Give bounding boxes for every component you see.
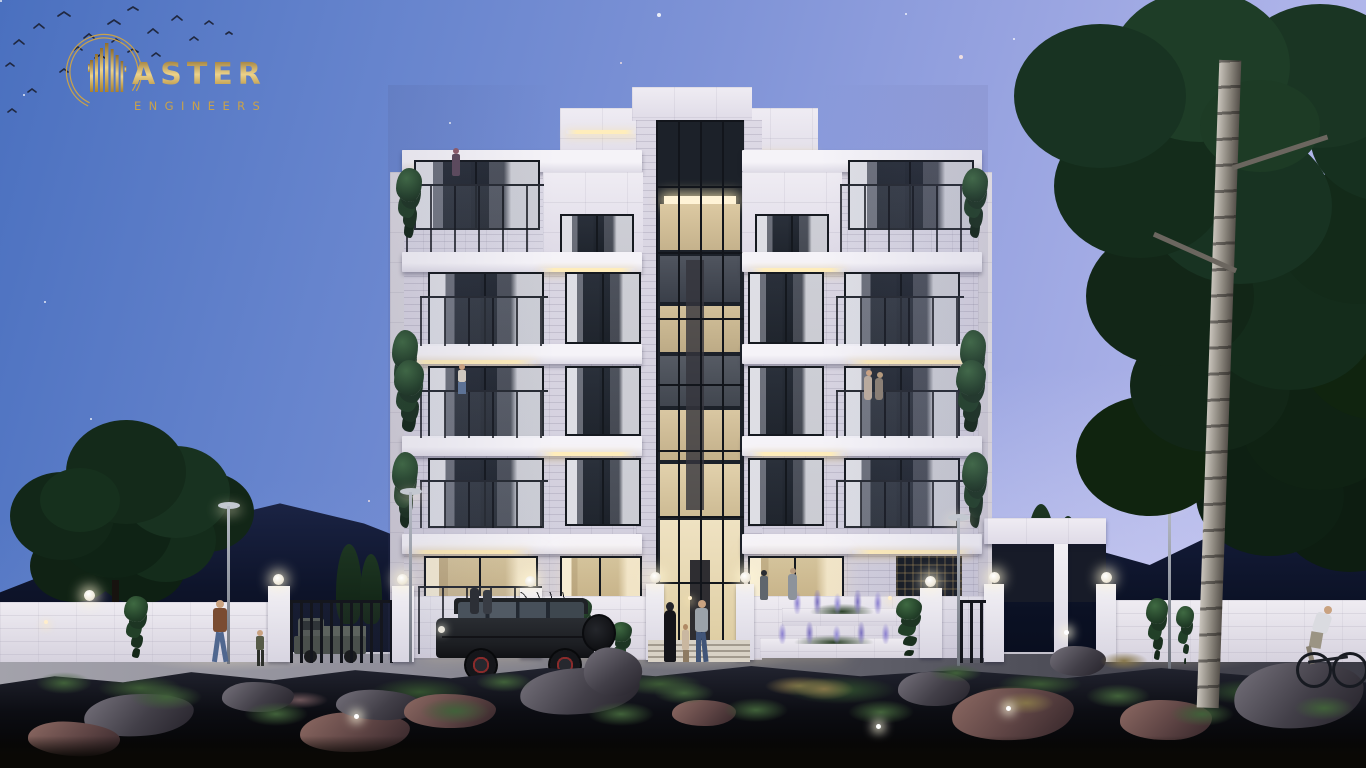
grass-tuft [588,702,654,726]
penthouse-window [755,214,829,256]
window [748,458,824,526]
iron-gate [290,600,394,663]
ground-light [1006,706,1011,711]
globe-lamp [273,574,284,585]
wall-sconce [44,620,48,624]
dry-grass-tuft [1100,652,1148,670]
led-soffit [848,360,978,364]
rooftop-woman [450,148,462,176]
balcony-railing [836,480,964,528]
child-center [680,624,691,662]
globe-lamp [1101,572,1112,583]
grass-tuft [130,684,202,710]
dry-grass-tuft [794,678,854,700]
dusk-building-render: ASTER ENGINEERS [0,0,1366,768]
iron-side-gate [960,600,986,663]
balcony-railing [420,390,548,438]
carport-canopy [984,518,1106,544]
grass-tuft [930,664,982,682]
penthouse-railing [406,184,544,252]
logo-skyline-m-icon [88,43,126,92]
terrace-person [786,568,799,600]
window [565,458,641,526]
brand-logo: ASTER ENGINEERS [52,20,302,124]
globe-lamp [397,574,408,585]
globe-lamp [989,572,1000,583]
ground-light [354,714,359,719]
grass-tuft [244,702,308,726]
ground-light [1064,630,1069,635]
walking-man [210,600,230,664]
lavender-plants [786,590,898,614]
balcony-railing [420,480,548,528]
walking-child [254,630,266,666]
window [748,366,824,436]
grass-tuft [724,698,788,722]
globe-lamp [525,576,536,587]
tower-parapet [632,87,752,121]
grass-tuft [420,698,490,724]
brand-subtitle: ENGINEERS [134,99,267,113]
balcony-railing [836,390,964,438]
grass-tuft [1294,696,1354,720]
grass-tuft [848,700,914,724]
wall-downlight [888,596,892,600]
cyclist [1292,606,1362,684]
window [565,272,641,344]
grass-tuft [654,682,714,704]
street-lamp-pole [1168,500,1171,672]
gate-pier [268,586,290,662]
ground-window-person [758,570,770,600]
grass-tuft [36,672,92,694]
balcony-woman-floor2 [456,364,468,394]
balcony-couple [864,372,886,400]
globe-lamp [650,572,661,583]
garden-pier [920,588,942,658]
globe-lamp [84,590,95,601]
window [565,366,641,436]
led-soffit [540,452,635,456]
ground-balcony-couple [470,586,494,614]
brand-name-suffix: ASTER [132,57,266,92]
canopy-pillar [1054,544,1068,656]
gate-pier [984,584,1004,662]
globe-lamp [740,572,751,583]
led-soffit [408,550,528,554]
grass-tuft [1086,684,1150,708]
window [748,272,824,344]
street-lamp-pole [957,518,960,666]
woman-in-abaya [662,602,678,662]
street-lamp-pole [409,492,412,662]
led-soffit [406,360,536,364]
tower-glass-shaft [656,120,744,660]
balcony-railing [420,296,548,346]
led-soffit [750,452,845,456]
canopy-shadow [992,544,1106,602]
curtain-wall-mullions [656,120,744,660]
grass-tuft [476,672,532,692]
led-soffit [566,130,636,134]
bottom-vignette [0,736,1366,768]
ground-light [876,724,881,729]
penthouse-railing [840,184,978,252]
tree-left-canopy [40,468,120,532]
man-center [692,600,710,662]
lavender-plants [766,622,902,644]
rock [1050,646,1106,676]
balcony-railing [836,296,964,346]
penthouse-window [560,214,634,256]
led-soffit [852,550,972,554]
globe-lamp [925,576,936,587]
